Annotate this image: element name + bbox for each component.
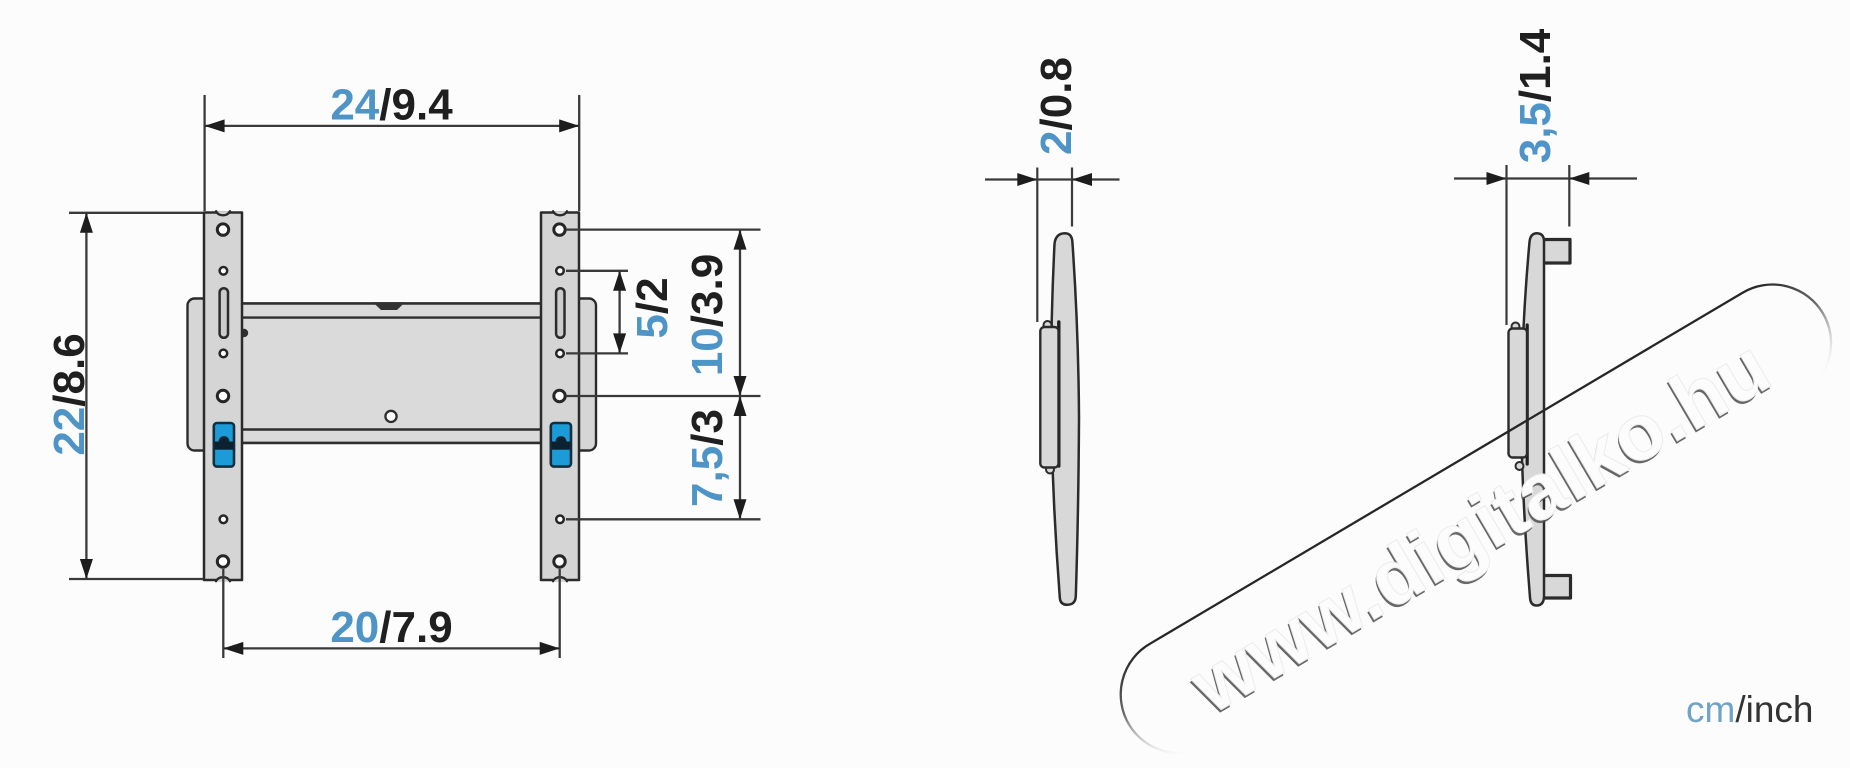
svg-text:2/0.8: 2/0.8 — [1032, 57, 1081, 155]
svg-text:24/9.4: 24/9.4 — [330, 81, 453, 130]
svg-text:10/3.9: 10/3.9 — [683, 254, 732, 376]
svg-text:cm/inch: cm/inch — [1686, 689, 1813, 730]
svg-text:22/8.6: 22/8.6 — [45, 333, 94, 455]
svg-text:5/2: 5/2 — [628, 277, 677, 338]
svg-text:7,5/3: 7,5/3 — [683, 409, 732, 507]
svg-text:3,5/1.4: 3,5/1.4 — [1511, 28, 1560, 163]
svg-text:20/7.9: 20/7.9 — [330, 603, 452, 652]
